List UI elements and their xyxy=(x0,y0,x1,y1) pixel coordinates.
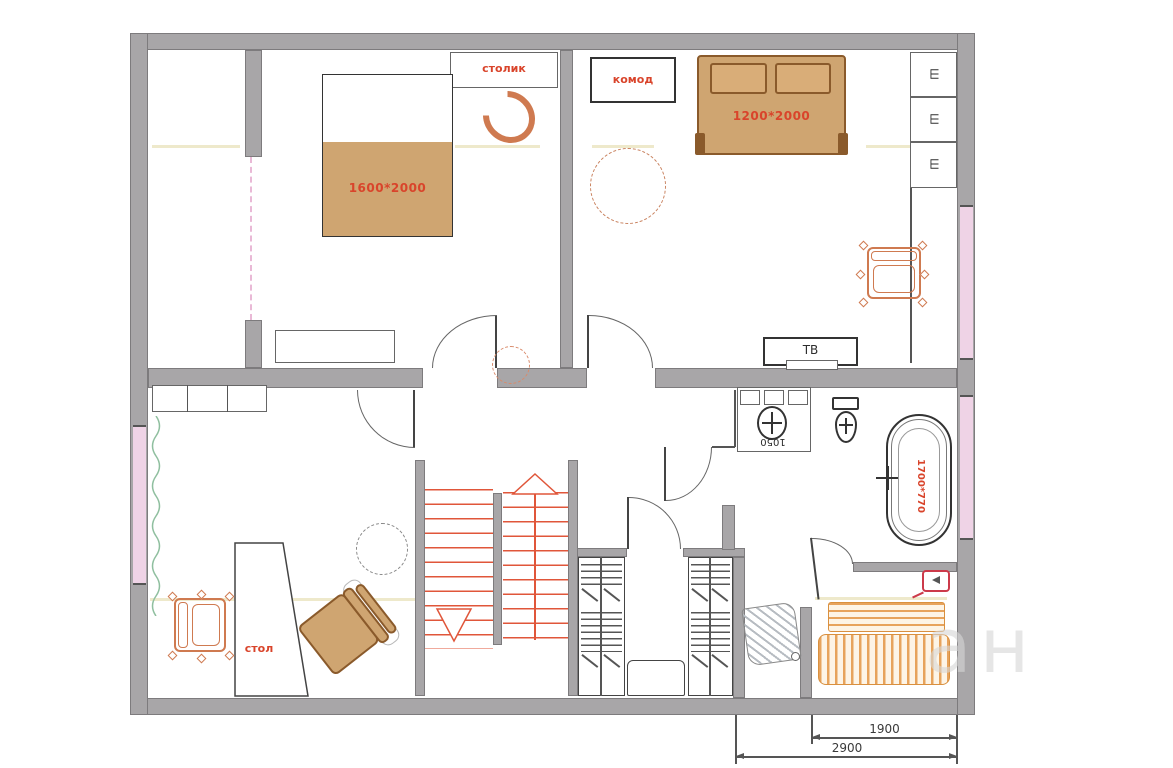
floor-plan: столик 1600*2000 комод 1200*2000 Ш Ш Ш xyxy=(0,0,1173,768)
table-dashed-circle xyxy=(356,523,408,575)
pillow xyxy=(775,63,831,94)
closet-shelves xyxy=(581,564,622,586)
bathtub-size-label: 1700*770 xyxy=(910,442,926,530)
dim-line-outer xyxy=(736,756,957,758)
wardrobe-cell-label: Ш xyxy=(927,51,939,98)
wall-stairs-left xyxy=(415,460,425,696)
stair-arrow-up xyxy=(510,472,560,496)
armchair-icon xyxy=(168,592,232,658)
armchair-knob xyxy=(920,270,930,280)
dresser-label: комод xyxy=(590,74,676,86)
vanity-drawer xyxy=(764,390,784,405)
armchair-back xyxy=(871,251,917,261)
window-right-lower xyxy=(960,395,973,540)
sauna-heater xyxy=(922,570,950,592)
wardrobe-cell-label: Ш xyxy=(927,96,939,143)
door-swing-arc xyxy=(589,315,653,368)
armchair-back xyxy=(178,602,188,648)
shower-drain xyxy=(791,652,800,661)
chair-icon xyxy=(472,80,546,154)
door-swing-arc xyxy=(812,538,853,564)
armchair-knob xyxy=(859,298,869,308)
door-swing-arc xyxy=(629,497,681,549)
side-table-label: столик xyxy=(450,63,558,75)
armchair-knob xyxy=(918,298,928,308)
bathroom-wall-thin-v xyxy=(734,390,736,447)
door-swing-arc xyxy=(432,315,497,368)
rug-dashed-circle xyxy=(590,148,666,224)
wall-outer-top xyxy=(130,33,975,50)
bed-arm xyxy=(695,133,705,155)
wall-shower-divider xyxy=(800,607,812,698)
wall-outer-bottom xyxy=(130,698,975,715)
counter-divider xyxy=(227,385,228,412)
watermark: ан xyxy=(925,600,1145,710)
tv-base xyxy=(786,360,838,370)
low-cabinet xyxy=(627,660,685,696)
tub-faucet-cross xyxy=(887,466,889,490)
bench xyxy=(275,330,395,363)
dim-arrow xyxy=(949,753,957,759)
closet-shelves xyxy=(691,612,730,652)
armchair-knob xyxy=(168,651,178,661)
dim-line-inner xyxy=(812,737,957,739)
wall-partition-top xyxy=(245,50,262,157)
counter-divider xyxy=(187,385,188,412)
pillow xyxy=(710,63,767,94)
ceiling-light-dashed-circle xyxy=(492,346,530,384)
closet-shelves xyxy=(691,564,730,586)
closet-shelves xyxy=(581,612,622,652)
bathroom-wall-thin-h xyxy=(712,446,735,448)
sink-faucet-cross xyxy=(771,412,773,434)
door-swing-arc xyxy=(666,447,712,501)
armchair-seat xyxy=(192,604,220,646)
door-swing-arc xyxy=(357,390,415,448)
wall-stairs-right xyxy=(568,460,578,696)
armchair-seat xyxy=(873,265,915,293)
wall-mid-right xyxy=(655,368,957,388)
toilet-cross xyxy=(845,418,847,434)
dim-arrow xyxy=(736,753,744,759)
beige-line xyxy=(455,145,540,148)
bed-arm xyxy=(838,133,848,155)
dim-label-outer: 2900 xyxy=(777,741,917,755)
armchair-knob xyxy=(197,654,207,664)
armchair-icon xyxy=(861,241,927,305)
curtain-wave xyxy=(146,416,166,616)
wall-hall-stub xyxy=(722,505,735,550)
vanity-size-label: 1050 xyxy=(748,436,798,447)
bed-single xyxy=(697,55,846,155)
stair-stringer xyxy=(534,492,536,640)
beige-line xyxy=(152,145,240,148)
armchair-knob xyxy=(856,270,866,280)
stair-arrow-down xyxy=(434,608,474,644)
wall-partition-stub xyxy=(245,320,262,368)
toilet-tank xyxy=(832,397,859,410)
window-left xyxy=(133,425,146,585)
wall-closet-top-right xyxy=(683,548,745,557)
vanity-drawer xyxy=(740,390,760,405)
tv-label: ТВ xyxy=(763,344,858,357)
vanity-drawer xyxy=(788,390,808,405)
counter xyxy=(152,385,267,412)
dim-label-inner: 1900 xyxy=(812,722,957,736)
bed1-size-label: 1600*2000 xyxy=(322,182,453,195)
bed-double xyxy=(322,74,453,237)
desk-label: стол xyxy=(236,643,282,655)
window-right-upper xyxy=(960,205,973,360)
wall-closet-top-left xyxy=(577,548,627,557)
sliding-door-dashed xyxy=(250,157,254,320)
heater-arrow-icon xyxy=(932,576,940,584)
bed2-size-label: 1200*2000 xyxy=(697,110,846,123)
wall-bedroom-divider xyxy=(560,50,573,368)
wall-stairs-mid xyxy=(493,493,502,645)
wardrobe-cell-label: Ш xyxy=(927,141,939,188)
